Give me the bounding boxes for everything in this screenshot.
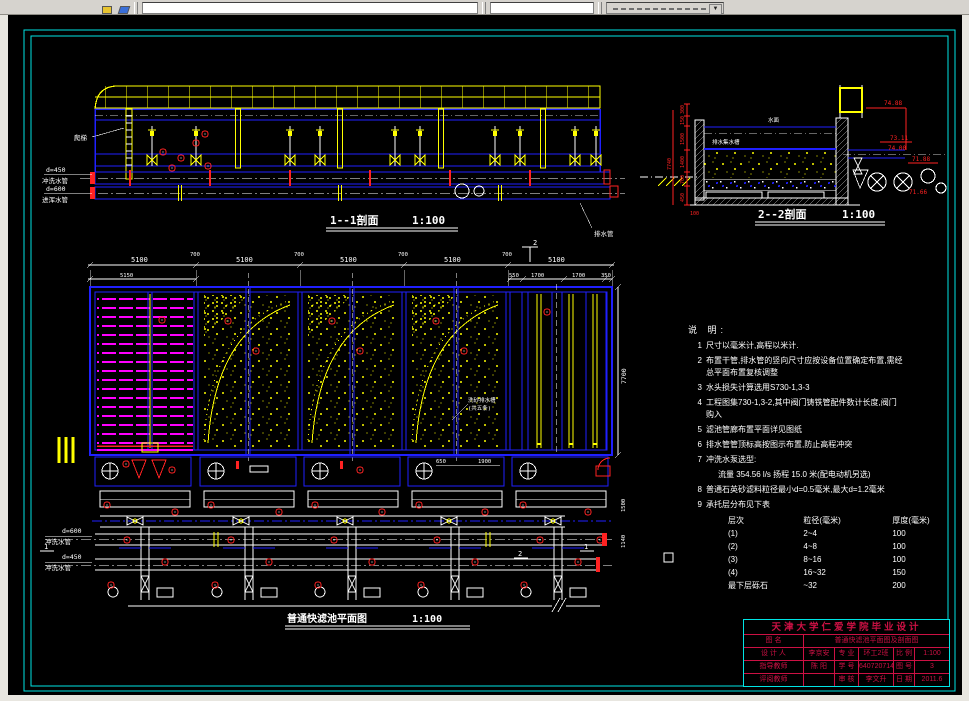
table-row: 最下层砾石 ~32 200 xyxy=(728,581,960,591)
svg-text:700: 700 xyxy=(294,252,304,258)
note-line: 滤池管廊布置平面详见图纸 xyxy=(706,425,802,435)
note-line: 总平面布置复核调整 xyxy=(706,368,960,378)
svg-text:100: 100 xyxy=(690,211,699,217)
svg-text:1--1剖面: 1--1剖面 xyxy=(330,213,379,227)
cad-toolbar: ▼ xyxy=(0,0,969,15)
svg-text:1:100: 1:100 xyxy=(412,214,445,227)
note-line: 承托层分布见下表 xyxy=(706,500,770,510)
note-line: 冲洗水泵选型: xyxy=(706,455,756,465)
toolbar-separator xyxy=(134,2,138,14)
svg-text:71.66: 71.66 xyxy=(909,189,927,196)
svg-text:1500: 1500 xyxy=(621,499,627,512)
table-row: (4) 16~32 150 xyxy=(728,568,960,578)
svg-text:2: 2 xyxy=(533,239,537,247)
svg-text:74.88: 74.88 xyxy=(884,100,902,107)
bay-grating xyxy=(97,292,193,452)
svg-text:(共五条): (共五条) xyxy=(468,404,491,412)
svg-text:700: 700 xyxy=(190,252,200,258)
svg-text:73.11: 73.11 xyxy=(890,135,908,142)
svg-text:5100: 5100 xyxy=(548,256,565,264)
svg-text:7740: 7740 xyxy=(667,158,673,170)
svg-text:5100: 5100 xyxy=(340,256,357,264)
svg-text:5100: 5100 xyxy=(444,256,461,264)
svg-text:进浑水管: 进浑水管 xyxy=(42,195,69,204)
svg-text:水面: 水面 xyxy=(768,116,780,124)
svg-text:150: 150 xyxy=(680,116,686,125)
svg-text:1500: 1500 xyxy=(680,133,686,145)
svg-text:1700: 1700 xyxy=(572,273,585,279)
layer-states-icon[interactable] xyxy=(117,3,130,14)
svg-text:5100: 5100 xyxy=(131,256,148,264)
table-header: 粒径(毫米) xyxy=(803,516,892,526)
svg-text:洗砂排水槽: 洗砂排水槽 xyxy=(468,396,496,404)
svg-text:排水集水槽: 排水集水槽 xyxy=(712,138,740,146)
table-row: (1) 2~4 100 xyxy=(728,529,960,539)
title-block-school: 天津大学仁爱学院毕业设计 xyxy=(744,620,949,635)
svg-text:1: 1 xyxy=(44,543,48,551)
toolbar-separator xyxy=(598,2,602,14)
svg-text:700: 700 xyxy=(680,175,686,184)
table-row: (3) 8~16 100 xyxy=(728,555,960,565)
svg-text:d=450: d=450 xyxy=(46,166,66,174)
svg-text:冲洗水管: 冲洗水管 xyxy=(45,563,72,572)
note-line: 水头损失计算选用S730-1,3-3 xyxy=(706,383,810,393)
note-line: 布置干管,排水管的竖向尺寸应按设备位置确定布置,需经 xyxy=(706,356,902,366)
svg-text:450: 450 xyxy=(680,193,686,202)
svg-text:1:100: 1:100 xyxy=(412,614,442,625)
svg-text:排水管: 排水管 xyxy=(594,229,614,238)
svg-text:1140: 1140 xyxy=(621,535,627,548)
svg-text:74.00: 74.00 xyxy=(888,145,906,152)
notes: 说 明: 1尺寸以毫米计,高程以米计. 2布置干管,排水管的竖向尺寸应按设备位置… xyxy=(688,325,960,591)
application-window: ▼ xyxy=(0,0,969,701)
svg-text:2--2剖面: 2--2剖面 xyxy=(758,207,807,221)
svg-text:1700: 1700 xyxy=(531,273,544,279)
table-row: (2) 4~8 100 xyxy=(728,542,960,552)
svg-text:d=450: d=450 xyxy=(62,553,82,561)
svg-text:5150: 5150 xyxy=(120,273,133,279)
note-line: 尺寸以毫米计,高程以米计. xyxy=(706,341,798,351)
svg-text:d=600: d=600 xyxy=(46,185,66,193)
svg-text:1: 1 xyxy=(584,543,588,551)
drawing-name: 普通快滤池平面图及剖面图 xyxy=(804,635,949,647)
svg-text:700: 700 xyxy=(398,252,408,258)
layer-combo[interactable] xyxy=(142,2,478,14)
svg-text:700: 700 xyxy=(502,252,512,258)
note-line: 流量 354.56 l/s 扬程 15.0 米(配电动机另选) xyxy=(718,470,960,480)
note-line: 购入 xyxy=(706,410,960,420)
svg-text:冲洗水管: 冲洗水管 xyxy=(45,537,72,546)
color-combo[interactable] xyxy=(490,2,594,14)
note-line: 普通石英砂滤料粒径最小d=0.5毫米,最大d=1.2毫米 xyxy=(706,485,885,495)
svg-text:650: 650 xyxy=(436,459,446,465)
svg-text:冲洗水管: 冲洗水管 xyxy=(42,176,69,185)
svg-text:350: 350 xyxy=(601,273,611,279)
svg-text:1:100: 1:100 xyxy=(842,208,875,221)
toolbar-separator xyxy=(482,2,486,14)
drawing-name-label: 图 名 xyxy=(744,635,804,647)
svg-text:71.88: 71.88 xyxy=(912,156,930,163)
table-header: 层次 xyxy=(728,516,803,526)
svg-text:300: 300 xyxy=(680,105,686,114)
title-block-row: 设 计 人 李京安 专 业 环工2班 比 例 1:100 xyxy=(744,648,949,661)
svg-text:7700: 7700 xyxy=(620,368,628,384)
svg-text:d=600: d=600 xyxy=(62,527,82,535)
title-block-row: 评阅教师 审 核 李文升 日 期 2011.6 xyxy=(744,674,949,686)
note-line: 排水管管顶标高按图示布置,防止高程冲突 xyxy=(706,440,852,450)
table-header: 厚度(毫米) xyxy=(892,516,960,526)
support-layer-table: 层次 粒径(毫米) 厚度(毫米) (1) 2~4 100 (2) 4~8 100… xyxy=(728,516,960,591)
svg-text:爬梯: 爬梯 xyxy=(74,133,88,142)
title-block-row: 指导教师 陈 阳 学 号 6407207140 图 号 3 xyxy=(744,661,949,674)
layer-manager-icon[interactable] xyxy=(100,3,113,14)
svg-text:5100: 5100 xyxy=(236,256,253,264)
notes-header: 说 明: xyxy=(688,325,960,335)
svg-text:550: 550 xyxy=(509,273,519,279)
chevron-down-icon[interactable]: ▼ xyxy=(709,4,722,15)
linetype-combo[interactable]: ▼ xyxy=(606,2,724,14)
note-line: 工程图集730-1,3-2,其中阀门铸铁管配件数计长度,阀门 xyxy=(706,398,897,408)
title-block: 天津大学仁爱学院毕业设计 图 名 普通快滤池平面图及剖面图 设 计 人 李京安 … xyxy=(743,619,950,687)
svg-text:2: 2 xyxy=(518,550,522,558)
svg-text:1400: 1400 xyxy=(680,156,686,168)
svg-text:普通快滤池平面图: 普通快滤池平面图 xyxy=(287,612,367,625)
svg-text:1900: 1900 xyxy=(478,459,491,465)
